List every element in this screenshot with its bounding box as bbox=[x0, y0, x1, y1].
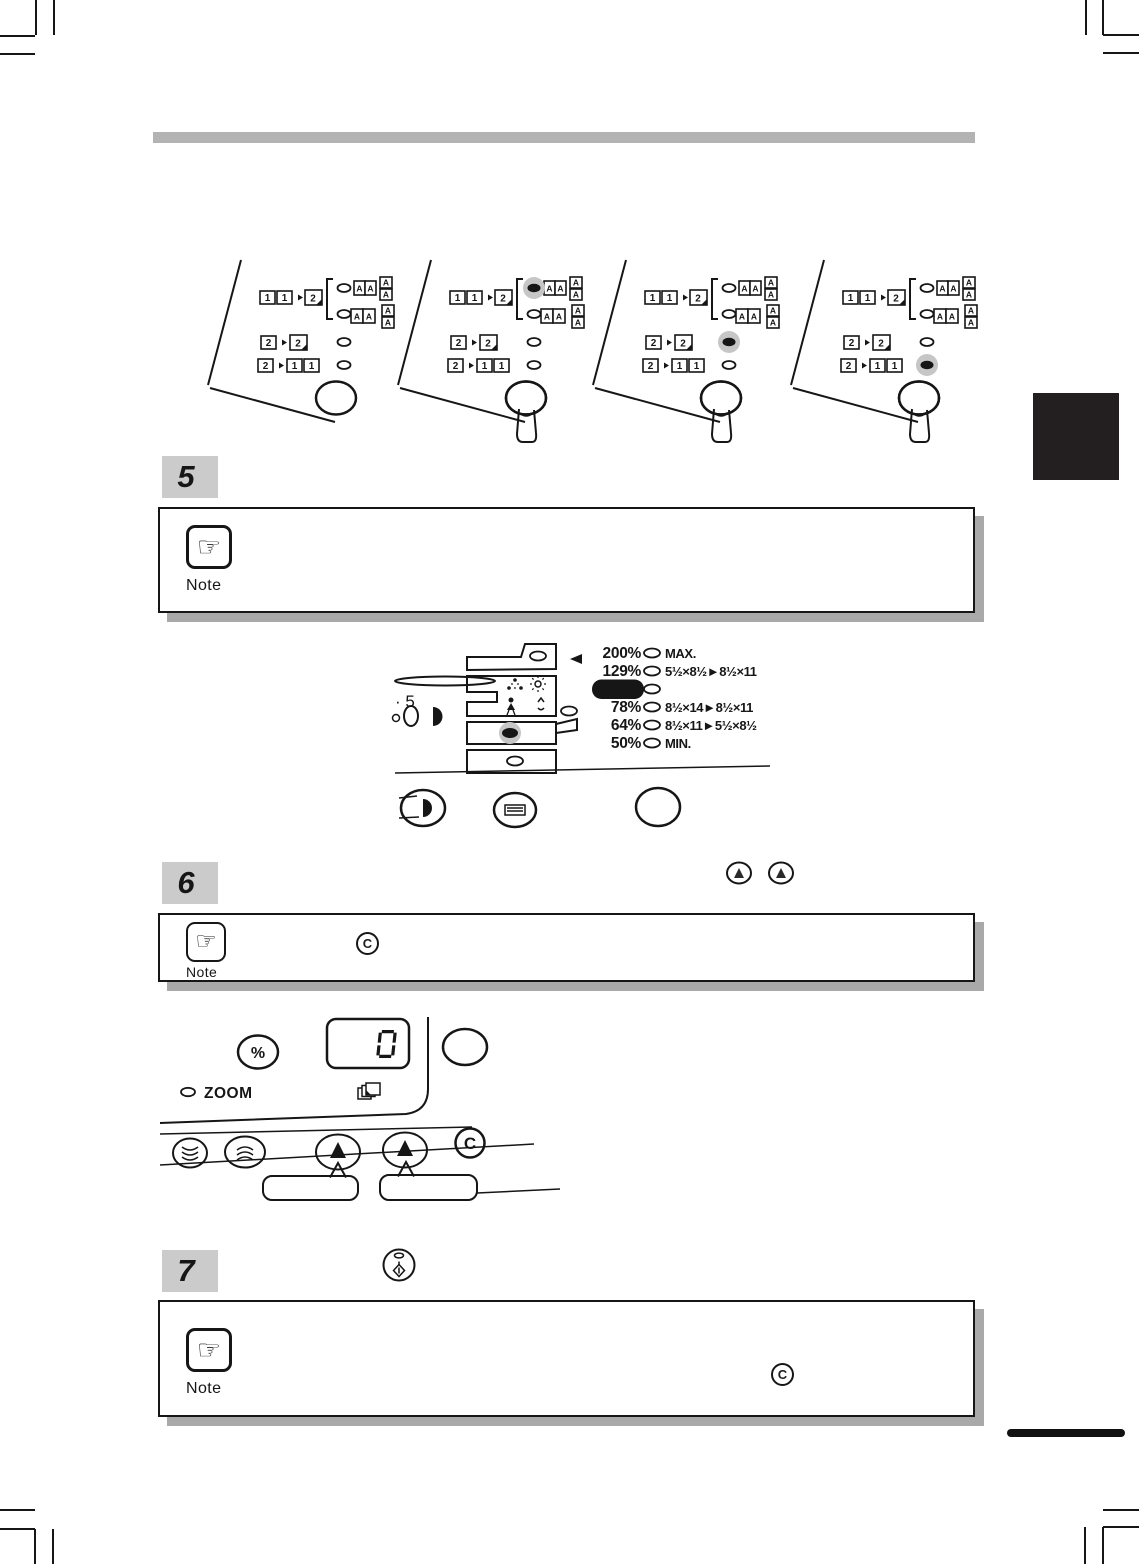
duplex-panel-2 bbox=[398, 260, 584, 442]
ratio-scale-list: 200% MAX. 129% 5½×8½►8½×11 100% 78% 8½×1… bbox=[592, 645, 757, 752]
note-label: Note bbox=[186, 1380, 221, 1398]
copy-ratio-diagram: · 5 bbox=[385, 640, 785, 840]
svg-text:MIN.: MIN. bbox=[665, 736, 691, 751]
svg-text:%: % bbox=[251, 1045, 265, 1062]
zoom-arrow-buttons bbox=[722, 857, 802, 891]
toner-save-icon bbox=[507, 678, 523, 690]
lit-ratio-led bbox=[502, 728, 518, 738]
note-box-1: ☞ Note bbox=[158, 507, 975, 613]
copies-icon bbox=[358, 1083, 380, 1099]
zoom-percent-button: % bbox=[238, 1036, 278, 1069]
duplex-panel-3 bbox=[593, 260, 779, 442]
svg-text:5½×8½►8½×11: 5½×8½►8½×11 bbox=[665, 664, 757, 679]
clear-key-symbol: C bbox=[771, 1363, 794, 1386]
duplex-panel-4 bbox=[791, 260, 977, 442]
svg-text:8½×14►8½×11: 8½×14►8½×11 bbox=[665, 700, 753, 715]
svg-text:64%: 64% bbox=[611, 717, 642, 734]
photo-mode-icon bbox=[538, 698, 544, 710]
note-box-3: ☞ Note C bbox=[158, 1300, 975, 1417]
note-label: Note bbox=[186, 964, 217, 980]
ratio-row-selected: 100% bbox=[592, 680, 660, 700]
text-mode-person-icon bbox=[507, 698, 515, 716]
half-moon-icon bbox=[423, 799, 432, 817]
zoom-panel-diagram: % ZOOM C bbox=[160, 1005, 570, 1215]
finger-pressing-button bbox=[701, 382, 741, 443]
darken-button bbox=[225, 1137, 265, 1168]
chapter-tab-marker bbox=[1033, 393, 1119, 480]
clear-key-symbol: C bbox=[356, 932, 379, 955]
note-hand-icon: ☞ bbox=[186, 922, 226, 962]
zoom-indicator-led bbox=[181, 1088, 195, 1096]
svg-text:MAX.: MAX. bbox=[665, 646, 696, 661]
ratio-display bbox=[327, 1019, 409, 1068]
interrupt-button bbox=[443, 1029, 487, 1065]
note-label: Note bbox=[186, 577, 221, 595]
ratio-row: 64% 8½×11►5½×8½ bbox=[611, 717, 757, 734]
duplex-mode-panels: 1 1 2 A A A A A A bbox=[203, 258, 993, 450]
duplex-panel-1 bbox=[208, 260, 394, 422]
ratio-row: 78% 8½×14►8½×11 bbox=[611, 699, 753, 716]
half-moon-icon bbox=[433, 707, 442, 726]
print-start-button bbox=[380, 1240, 420, 1288]
lit-led bbox=[916, 354, 938, 376]
svg-text:C: C bbox=[464, 1134, 476, 1153]
zoom-callout-right bbox=[380, 1162, 477, 1200]
finger-pressing-button bbox=[506, 382, 546, 443]
copy-ratio-select-button bbox=[636, 788, 680, 826]
step-number-5: 5 bbox=[162, 456, 218, 498]
note-hand-icon: ☞ bbox=[186, 525, 232, 569]
zoom-indicator-label: ZOOM bbox=[204, 1085, 253, 1102]
svg-text:100%: 100% bbox=[599, 682, 636, 698]
seven-segment-display bbox=[376, 1030, 397, 1058]
ratio-row: 50% MIN. bbox=[611, 735, 691, 752]
svg-text:8½×11►5½×8½: 8½×11►5½×8½ bbox=[665, 718, 757, 733]
note-hand-icon: ☞ bbox=[186, 1328, 232, 1372]
manual-page: 1 1 2 A A A A A A bbox=[0, 0, 1139, 1564]
ready-led-icon bbox=[395, 1253, 404, 1258]
ratio-row: 129% 5½×8½►8½×11 bbox=[603, 663, 757, 680]
svg-text:50%: 50% bbox=[611, 735, 642, 752]
lit-led bbox=[718, 331, 740, 353]
svg-text:200%: 200% bbox=[603, 645, 642, 662]
svg-text:78%: 78% bbox=[611, 699, 642, 716]
step-number-7: 7 bbox=[162, 1250, 218, 1292]
finger-pressing-button bbox=[899, 382, 939, 443]
svg-text:129%: 129% bbox=[603, 663, 642, 680]
section-header-rule bbox=[153, 132, 975, 143]
paper-select-button bbox=[494, 793, 536, 827]
note-box-2: ☞ Note C bbox=[158, 913, 975, 982]
exposure-mode-button bbox=[401, 790, 445, 826]
footer-rule bbox=[1007, 1429, 1125, 1437]
ratio-row: 200% MAX. bbox=[603, 645, 696, 662]
step-number-6: 6 bbox=[162, 862, 218, 904]
ratio-pointer-arrow-icon bbox=[570, 654, 582, 664]
auto-exposure-sun-icon bbox=[530, 676, 546, 692]
exposure-scale-text: · 5 bbox=[395, 692, 415, 711]
lit-led bbox=[523, 277, 545, 299]
ratio-panel-outline bbox=[467, 644, 582, 773]
clear-button: C bbox=[456, 1129, 485, 1158]
